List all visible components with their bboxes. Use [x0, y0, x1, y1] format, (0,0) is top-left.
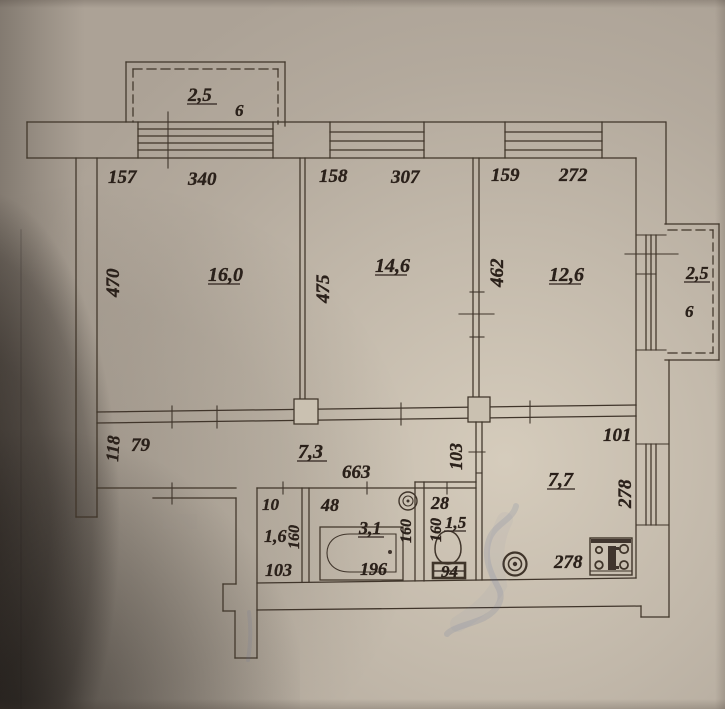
svg-text:7,7: 7,7	[548, 469, 574, 491]
svg-text:2,5: 2,5	[685, 263, 709, 283]
svg-text:6: 6	[235, 101, 244, 120]
svg-text:196: 196	[360, 559, 387, 579]
svg-text:278: 278	[553, 552, 583, 573]
svg-text:663: 663	[342, 462, 371, 483]
svg-text:340: 340	[187, 169, 217, 190]
svg-text:475: 475	[313, 274, 334, 304]
svg-text:7,3: 7,3	[298, 441, 323, 463]
svg-text:278: 278	[615, 479, 636, 509]
svg-text:10: 10	[262, 495, 280, 514]
svg-text:158: 158	[319, 166, 348, 187]
svg-text:160: 160	[428, 518, 445, 542]
svg-text:470: 470	[103, 268, 124, 298]
svg-text:272: 272	[558, 165, 588, 186]
svg-text:101: 101	[603, 425, 632, 446]
svg-text:307: 307	[390, 167, 421, 188]
svg-text:1,6: 1,6	[264, 526, 287, 546]
svg-text:2,5: 2,5	[187, 85, 212, 106]
svg-text:462: 462	[487, 258, 508, 288]
svg-text:12,6: 12,6	[549, 264, 584, 286]
svg-text:1,5: 1,5	[445, 513, 467, 532]
svg-text:118: 118	[102, 435, 124, 462]
svg-text:160: 160	[398, 519, 415, 543]
svg-text:3,1: 3,1	[358, 518, 382, 538]
svg-text:14,6: 14,6	[375, 255, 410, 277]
svg-text:28: 28	[430, 493, 449, 513]
svg-text:103: 103	[265, 560, 292, 580]
svg-text:103: 103	[446, 443, 466, 470]
svg-text:159: 159	[491, 165, 520, 186]
svg-text:79: 79	[131, 435, 151, 456]
svg-text:6: 6	[685, 302, 694, 321]
svg-text:157: 157	[108, 167, 138, 188]
svg-text:160: 160	[286, 525, 303, 549]
svg-text:16,0: 16,0	[208, 264, 243, 286]
svg-text:48: 48	[320, 495, 339, 515]
